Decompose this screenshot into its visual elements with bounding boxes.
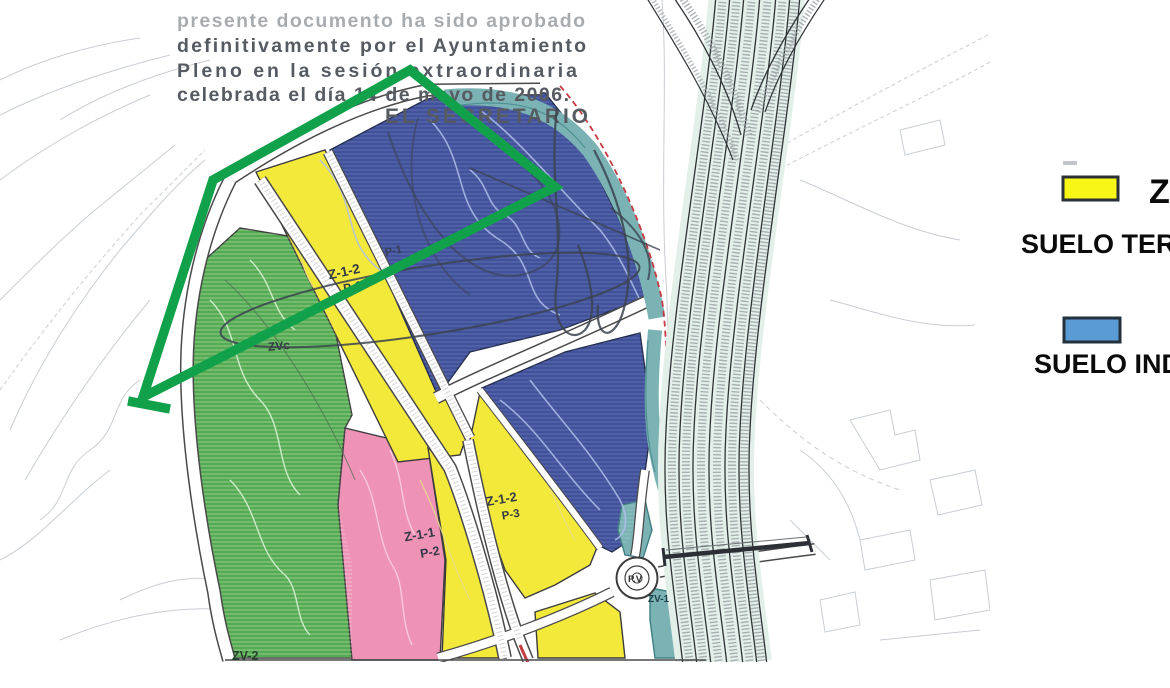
cadastral-line	[800, 450, 860, 540]
cadastral-line	[830, 300, 975, 326]
cadastral-line	[60, 609, 230, 640]
legend-label-terciario: SUELO TERC	[1021, 229, 1170, 259]
stamp-line-1: definitivamente por el Ayuntamiento	[177, 35, 586, 57]
legend: Z SUELO TERC SUELO IND	[1021, 161, 1170, 379]
cadastral-building	[930, 570, 990, 620]
legend-title-terciario: Z	[1149, 173, 1170, 211]
cadastral-road	[760, 400, 900, 490]
legend-label-industrial: SUELO IND	[1034, 349, 1170, 379]
approval-stamp: presente documento ha sido aprobado defi…	[177, 10, 588, 128]
stamp-line-2: Pleno en la sesión extraordinaria	[177, 60, 577, 82]
crossing-bar-tick	[663, 548, 665, 566]
cadastral-line	[0, 145, 175, 300]
cadastral-road	[768, 62, 990, 175]
cadastral-line	[0, 38, 140, 80]
roundabout-green-label: ZV-1	[648, 594, 670, 605]
map-canvas: presente documento ha sido aprobado defi…	[0, 0, 1170, 688]
zone-pink-area	[338, 428, 445, 660]
cadastral-building	[820, 592, 860, 632]
cadastral-building	[850, 410, 920, 470]
planning-map-screenshot: presente documento ha sido aprobado defi…	[0, 0, 1170, 688]
green-boundary-stub	[128, 401, 170, 409]
cadastral-line	[800, 180, 960, 240]
cadastral-line	[40, 380, 140, 520]
highway	[645, 0, 826, 665]
legend-artifact-mark	[1063, 161, 1077, 165]
legend-swatch-terciario	[1063, 177, 1118, 200]
cadastral-line	[0, 95, 150, 180]
cadastral-building	[900, 120, 945, 155]
cadastral-building	[930, 470, 982, 515]
cadastral-line	[0, 470, 110, 560]
zone-label-green: ZVc	[267, 338, 290, 354]
cadastral-line	[790, 520, 980, 640]
roundabout-label: P.V	[628, 574, 643, 585]
bottom-green-label: ZV-2	[232, 649, 258, 663]
cadastral-building	[860, 530, 915, 570]
cadastral-road	[775, 35, 988, 150]
stamp-line-top: presente documento ha sido aprobado	[177, 10, 585, 32]
legend-swatch-industrial	[1064, 318, 1120, 342]
cadastral-line	[25, 300, 150, 480]
